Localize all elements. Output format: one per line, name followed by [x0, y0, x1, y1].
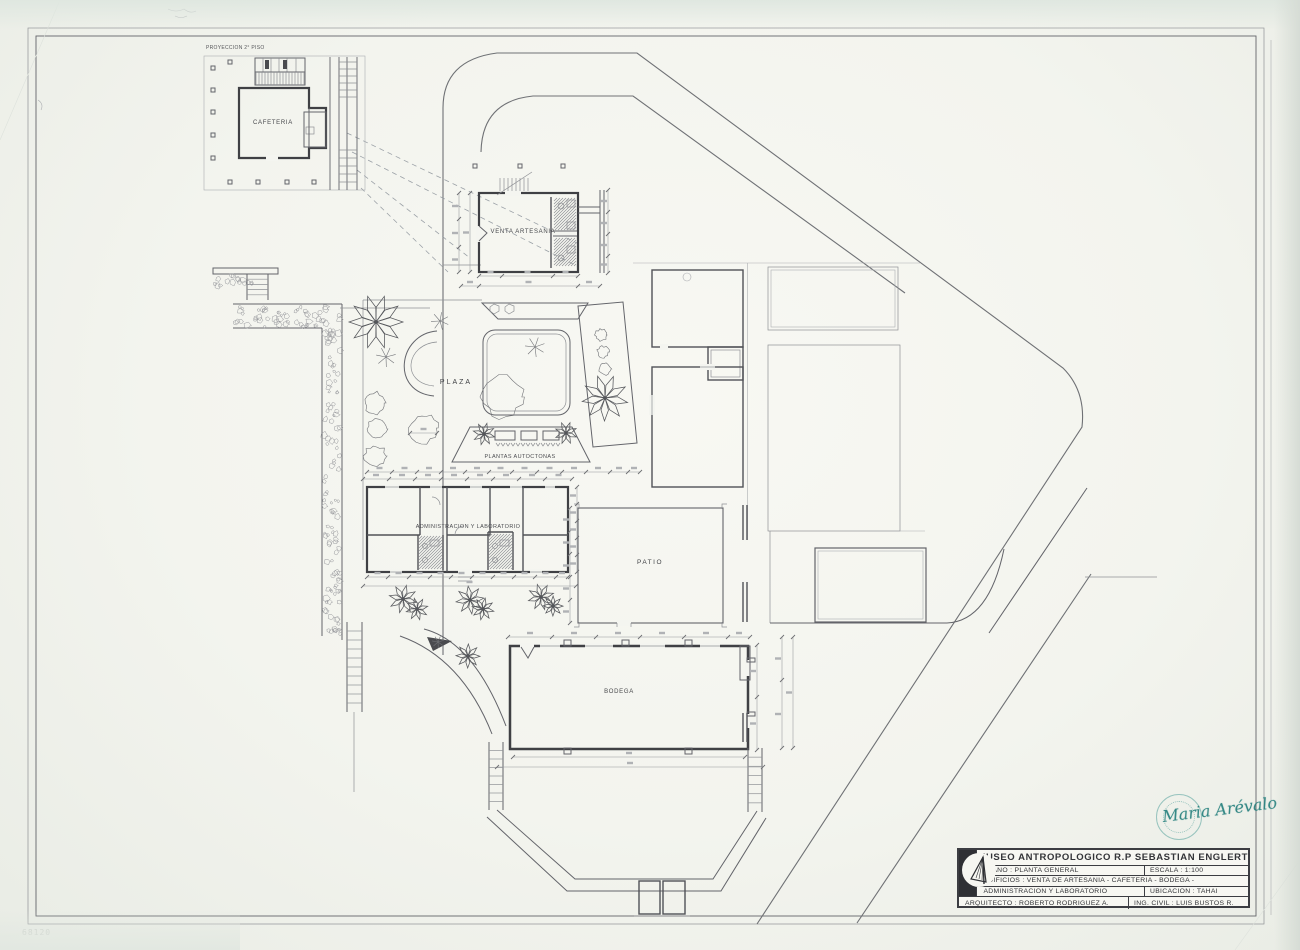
museum-logo — [959, 850, 977, 896]
paper-creases — [0, 0, 1300, 950]
south-path — [347, 622, 766, 916]
dimension-lines — [361, 188, 795, 769]
museum-logo-icon — [959, 850, 999, 890]
title-admin-lab: ADMINISTRACION Y LABORATORIO — [977, 888, 1144, 895]
sheet-border — [28, 28, 1271, 924]
plaza-label: PLAZA — [440, 379, 472, 386]
patio: PATIO — [574, 504, 727, 627]
plantas-label: PLANTAS AUTOCTONAS — [484, 454, 555, 460]
admin-lab-building: ADMINISTRACION Y LABORATORIO — [367, 484, 568, 581]
title-ing-civil: ING. CIVIL : LUIS BUSTOS R. — [1128, 897, 1248, 909]
cafeteria-label: CAFETERIA — [253, 120, 293, 126]
patio-label: PATIO — [637, 559, 663, 566]
bodega-label: BODEGA — [604, 689, 634, 695]
title-ubicacion: UBICACION : TAHAI — [1144, 887, 1248, 896]
drawing-sheet: PROYECCION 2° PISO CAFETERIA VENTA AR — [0, 0, 1300, 950]
right-complex — [649, 263, 926, 742]
bodega-building: BODEGA — [510, 640, 755, 754]
title-block: MUSEO ANTROPOLOGICO R.P SEBASTIAN ENGLER… — [957, 848, 1250, 908]
proyeccion-label: PROYECCION 2° PISO — [206, 45, 265, 51]
vegetation — [349, 296, 628, 668]
title-edificios: EDIFICIOS : VENTA DE ARTESANIA - CAFETER… — [977, 877, 1248, 884]
site-plan-drawing: PROYECCION 2° PISO CAFETERIA VENTA AR — [0, 0, 1300, 950]
admin-label: ADMINISTRACION Y LABORATORIO — [416, 524, 521, 530]
title-arquitecto: ARQUITECTO : ROBERTO RODRIGUEZ A. — [959, 900, 1128, 907]
title-escala: ESCALA : 1:100 — [1144, 866, 1248, 875]
venta-label: VENTA ARTESANIA — [491, 229, 556, 235]
pencil-note: 68120 — [22, 928, 51, 937]
title-museum-name: MUSEO ANTROPOLOGICO R.P SEBASTIAN ENGLER… — [977, 850, 1248, 866]
projection-dashed-lines — [347, 133, 577, 272]
title-plano: PLANO : PLANTA GENERAL — [977, 867, 1144, 874]
venta-artesania-building: VENTA ARTESANIA — [476, 172, 604, 273]
plaza: PLAZA PLANTAS AUTOCTONAS — [363, 300, 637, 560]
